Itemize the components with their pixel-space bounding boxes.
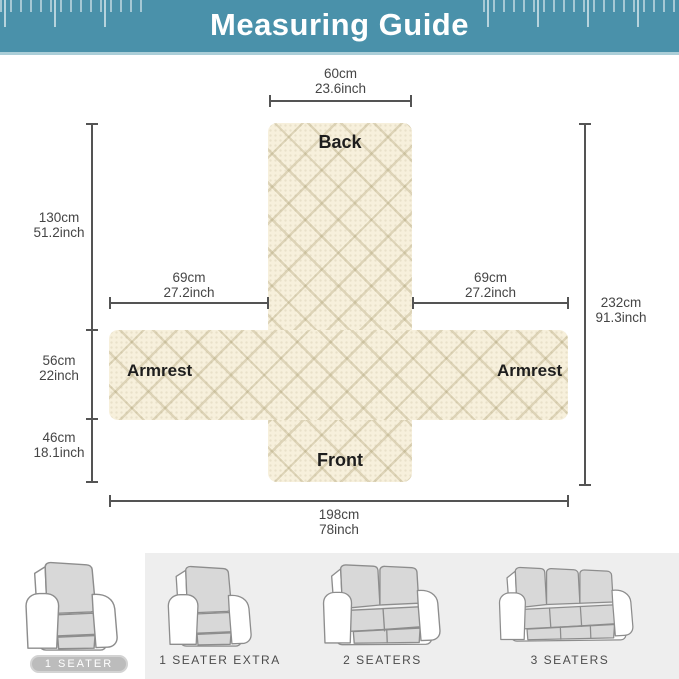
variant-2-seaters: 2 SEATERS	[295, 553, 470, 679]
selected-variant-badge: 1 SEATER	[30, 655, 128, 673]
recliner-1-seater-illustration	[12, 560, 134, 652]
page-title: Measuring Guide	[0, 7, 679, 43]
dimension-tick	[86, 418, 98, 420]
recliner-1-seater-extra-illustration	[157, 562, 265, 650]
dimension-line-armrest-right-width	[412, 302, 569, 304]
armrest-right-label: Armrest	[497, 361, 562, 381]
measurement-armrest-right-width: 69cm 27.2inch	[412, 270, 569, 300]
variant-label: 3 SEATERS	[470, 653, 670, 667]
variant-label: 1 SEATER EXTRA	[145, 653, 295, 667]
measuring-guide-infographic: Measuring Guide Back Front Armrest Armre…	[0, 0, 679, 679]
variant-3-seaters: 3 SEATERS	[470, 553, 670, 679]
dimension-line-armrest-left-width	[109, 302, 269, 304]
measurement-armrest-height: 56cm 22inch	[24, 353, 94, 383]
dimension-line-total-width	[109, 500, 569, 502]
cover-back-front-panel	[268, 123, 412, 482]
dimension-tick	[86, 329, 98, 331]
variant-1-seater: 1 SEATER	[0, 553, 145, 679]
armrest-left-label: Armrest	[127, 361, 192, 381]
variant-1-seater-extra: 1 SEATER EXTRA	[145, 553, 295, 679]
back-panel-label: Back	[268, 132, 412, 153]
sofa-3-seaters-illustration	[487, 557, 657, 652]
measurement-back-width: 60cm 23.6inch	[269, 66, 412, 96]
variant-label: 2 SEATERS	[295, 653, 470, 667]
front-panel-label: Front	[268, 450, 412, 471]
measurement-back-height: 130cm 51.2inch	[24, 210, 94, 240]
dimension-line-back-width	[269, 100, 412, 102]
header-banner: Measuring Guide	[0, 0, 679, 55]
measurement-total-length: 232cm 91.3inch	[586, 295, 656, 325]
sofa-2-seaters-illustration	[310, 559, 458, 651]
measurement-total-width: 198cm 78inch	[109, 507, 569, 537]
measurement-armrest-left-width: 69cm 27.2inch	[109, 270, 269, 300]
measurement-front-height: 46cm 18.1inch	[22, 430, 96, 460]
dimension-line-left-heights	[91, 123, 93, 483]
